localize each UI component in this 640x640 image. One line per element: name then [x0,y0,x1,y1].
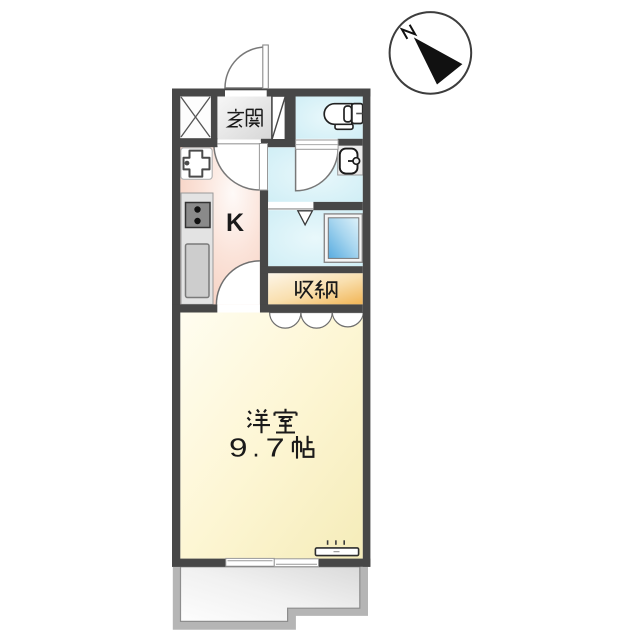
svg-text:9: 9 [229,433,248,463]
svg-text:.: . [252,433,259,463]
svg-text:7: 7 [266,433,285,463]
svg-text:K: K [226,209,244,237]
